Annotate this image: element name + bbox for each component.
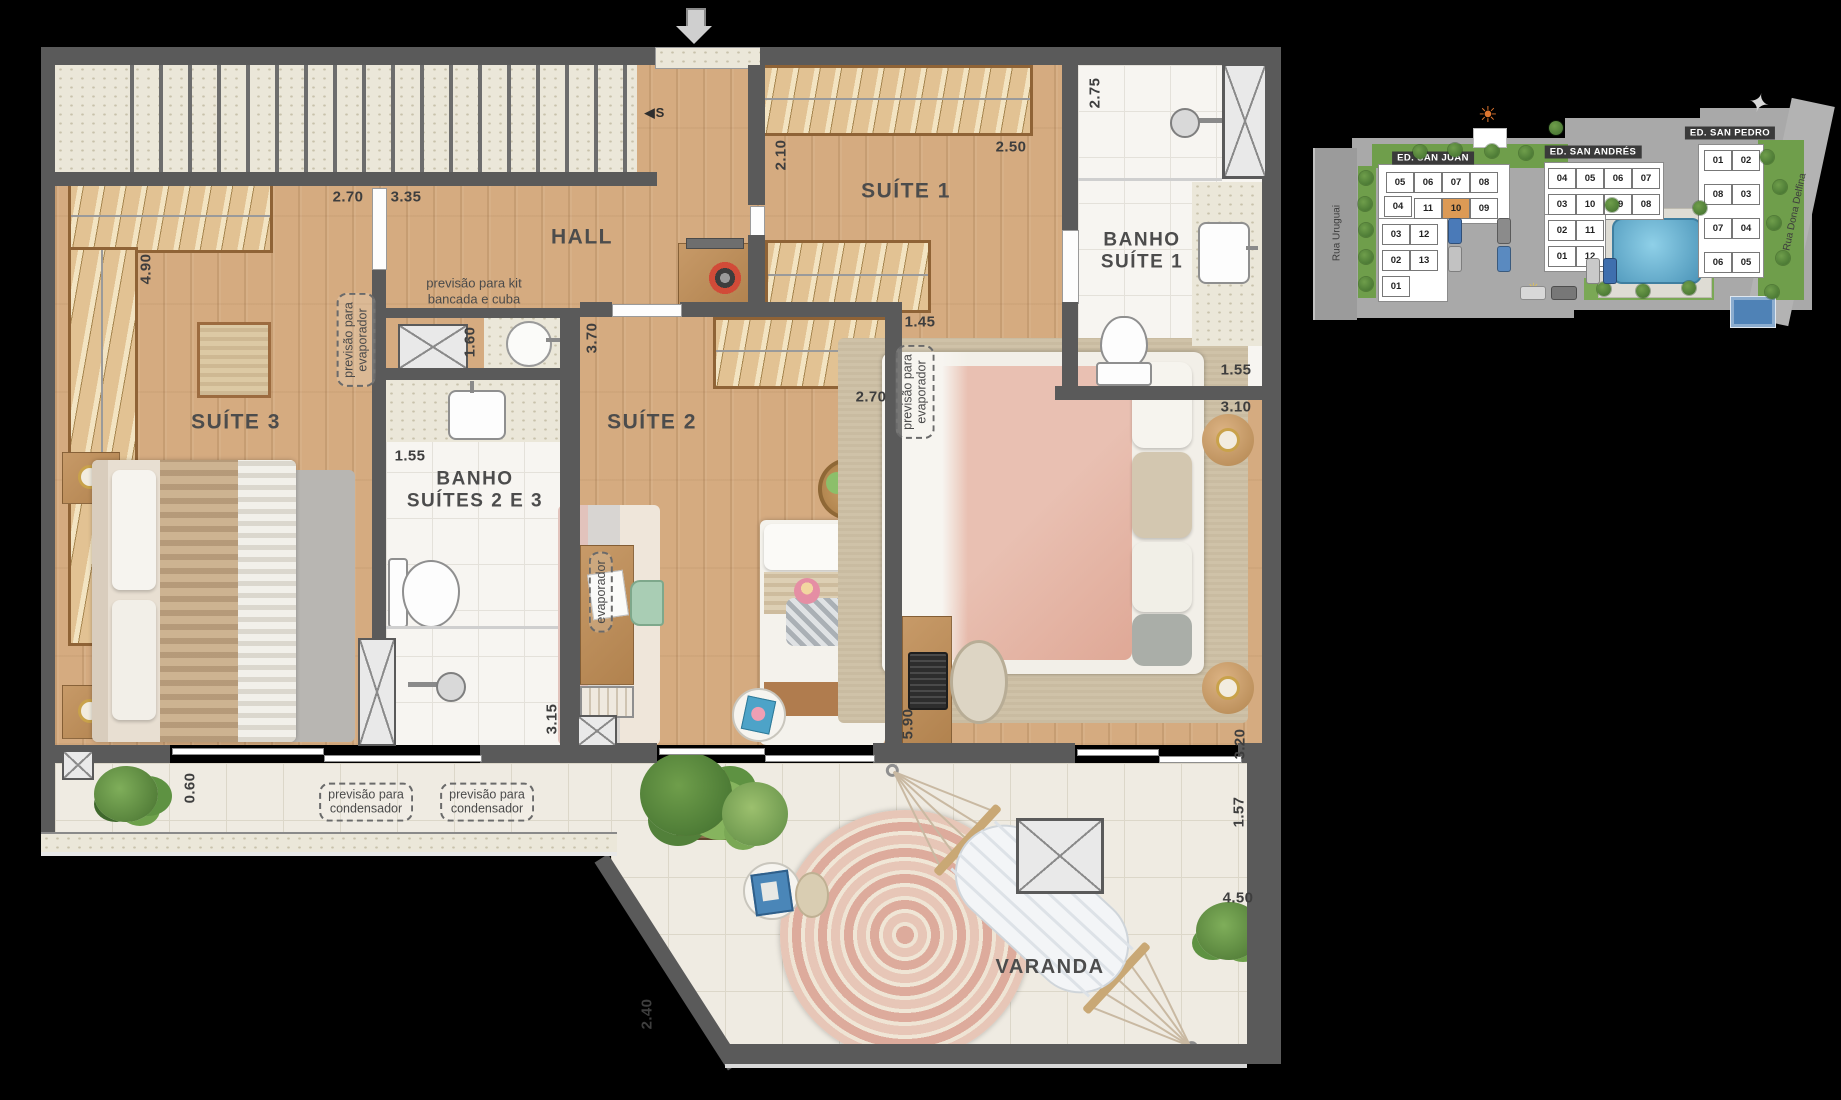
car-icon	[1603, 258, 1617, 284]
dimension-1.55: 1.55	[395, 448, 426, 465]
wall	[41, 172, 657, 186]
wall	[873, 743, 1075, 763]
sink-banho-1	[1198, 222, 1250, 284]
label-banho-suite-1: BANHOSUÍTE 1	[1101, 230, 1183, 275]
lamp-icon	[1216, 428, 1240, 452]
wall	[480, 745, 602, 763]
unit-san-juan-12: 12	[1410, 224, 1438, 245]
unit-san-juan-03: 03	[1382, 224, 1410, 245]
tree-icon	[1767, 216, 1781, 230]
label-banho-suites-2-3: BANHOSUÍTES 2 E 3	[407, 469, 543, 514]
shaft-icon	[358, 638, 396, 746]
unit-san-andres-01: 01	[1548, 246, 1576, 267]
dimension-2.75: 2.75	[1087, 78, 1104, 109]
unit-san-pedro-04: 04	[1732, 218, 1760, 239]
dresser-suite-2	[580, 686, 634, 718]
tree-icon	[1359, 171, 1373, 185]
dimension-2.40: 2.40	[639, 999, 656, 1030]
plant-icon	[94, 766, 158, 822]
note-evaporador-suite2: evaporador	[589, 551, 613, 632]
wall	[41, 47, 655, 65]
tree-icon	[1597, 282, 1611, 296]
car-icon	[1586, 258, 1600, 284]
lamp-icon	[1216, 676, 1240, 700]
chair-green-icon	[630, 580, 664, 626]
varanda-edge	[725, 1064, 1247, 1068]
tree-icon	[1359, 250, 1373, 264]
unit-san-pedro-08: 08	[1704, 184, 1732, 205]
plant-icon	[640, 752, 732, 836]
unit-san-juan-08: 08	[1470, 172, 1498, 193]
entry-arrow-icon	[686, 8, 706, 28]
tree-icon	[1358, 197, 1372, 211]
tree-icon	[1413, 145, 1427, 159]
toilet-banho-1-tank	[1096, 362, 1152, 386]
shaft-icon	[62, 750, 94, 780]
sliding-door	[659, 748, 765, 755]
unit-san-andres-02: 02	[1548, 220, 1576, 241]
tree-icon	[1448, 143, 1462, 157]
unit-san-juan-01: 01	[1382, 276, 1410, 297]
tree-icon	[1485, 144, 1499, 158]
dimension-2.70: 2.70	[333, 189, 364, 206]
dimension-2.10: 2.10	[773, 140, 790, 171]
pool	[1612, 218, 1702, 284]
shaft-icon	[1222, 63, 1268, 179]
tree-icon	[1765, 285, 1779, 299]
door-suite-2	[612, 304, 682, 317]
car-icon	[1551, 286, 1577, 300]
shower-partition-1	[1078, 178, 1222, 181]
unit-san-juan-10: 10	[1442, 198, 1470, 219]
unit-san-andres-07: 07	[1632, 168, 1660, 189]
wall	[725, 1044, 1247, 1064]
shaft-icon	[577, 715, 617, 747]
dimension-2.70: 2.70	[856, 389, 887, 406]
door-suite-1	[750, 206, 765, 236]
unit-san-pedro-05: 05	[1732, 252, 1760, 273]
building-label: ED. SAN JUAN	[1392, 152, 1474, 165]
unit-san-andres-05: 05	[1576, 168, 1604, 189]
dimension-1.60: 1.60	[462, 327, 479, 358]
dimension-3.20: 3.20	[1232, 729, 1249, 760]
tree-icon	[1636, 284, 1650, 298]
shower-head-1-icon	[1170, 108, 1200, 138]
unit-san-juan-07: 07	[1442, 172, 1470, 193]
plant-icon	[722, 782, 788, 846]
wall	[386, 308, 580, 318]
tree-icon	[1760, 150, 1774, 164]
shaft-icon	[398, 324, 468, 370]
unit-san-andres-08: 08	[1632, 194, 1660, 215]
varanda-parapet	[41, 832, 617, 854]
dimension-3.35: 3.35	[391, 189, 422, 206]
unit-san-andres-10: 10	[1576, 194, 1604, 215]
bed-suite-3	[92, 460, 296, 742]
car-icon	[1448, 246, 1462, 272]
note-kit-bancada: previsão para kitbancada e cuba	[426, 275, 521, 306]
wall	[748, 235, 765, 302]
wall	[748, 65, 765, 205]
tree-icon	[1682, 281, 1696, 295]
shower-partition-2-3	[386, 626, 560, 629]
label-varanda: VARANDA	[995, 956, 1104, 980]
dimension-3.15: 3.15	[544, 704, 561, 735]
car-icon	[1448, 218, 1462, 244]
note-condensador-2: previsão paracondensador	[440, 783, 534, 822]
dimension-2.50: 2.50	[996, 139, 1027, 156]
note-evaporador-suite3: previsão paraevaporador	[337, 293, 376, 387]
unit-san-pedro-07: 07	[1704, 218, 1732, 239]
floor-plan-page: SUÍTE 3HALLSUÍTE 2SUÍTE 1BANHOSUÍTES 2 E…	[0, 0, 1841, 1100]
door-suite-3	[372, 188, 387, 270]
dimension-3.10: 3.10	[1221, 399, 1252, 416]
label-suite-2: SUÍTE 2	[607, 411, 697, 436]
wall	[760, 47, 1281, 65]
unit-san-juan-02: 02	[1382, 250, 1410, 271]
stair-treads	[130, 65, 637, 172]
unit-san-andres-03: 03	[1548, 194, 1576, 215]
tree-icon	[1693, 201, 1707, 215]
wall	[560, 308, 580, 763]
shower-head-2-3-icon	[436, 672, 466, 702]
faucet-icon	[546, 338, 560, 342]
unit-san-andres-11: 11	[1576, 220, 1604, 241]
dimension-4.50: 4.50	[1223, 890, 1254, 907]
dimension-4.90: 4.90	[138, 254, 155, 285]
shaft-icon	[1016, 818, 1104, 894]
tree-icon	[1549, 121, 1563, 135]
wall	[680, 302, 885, 317]
unit-san-juan-13: 13	[1410, 250, 1438, 271]
unit-san-andres-06: 06	[1604, 168, 1632, 189]
toy-owl-icon	[794, 578, 820, 604]
shelf-hall	[686, 238, 744, 249]
varanda-edge	[41, 852, 617, 856]
unit-san-juan-11: 11	[1414, 198, 1442, 219]
label-hall: HALL	[551, 226, 613, 251]
entry-landing	[655, 47, 762, 69]
unit-san-andres-04: 04	[1548, 168, 1576, 189]
unit-san-pedro-02: 02	[1732, 150, 1760, 171]
closet-suite-3-top	[68, 182, 273, 253]
car-icon	[1497, 246, 1511, 272]
unit-san-juan-09: 09	[1470, 198, 1498, 219]
tree-icon	[1359, 223, 1373, 237]
dimension-1.55: 1.55	[1221, 362, 1252, 379]
dimension-5.90: 5.90	[900, 709, 917, 740]
wall	[580, 302, 612, 317]
tree-icon	[1359, 277, 1373, 291]
sink-round-icon	[506, 321, 552, 367]
tree-icon	[1776, 251, 1790, 265]
sliding-door	[172, 748, 324, 755]
door-banho-suite-1	[1062, 230, 1079, 304]
unit-san-juan-04: 04	[1384, 196, 1412, 217]
photo-frame-icon	[750, 870, 793, 917]
dimension-1.57: 1.57	[1231, 797, 1248, 828]
car-icon	[1497, 218, 1511, 244]
street-label: Rua Uruguai	[1332, 205, 1343, 261]
pouf-suite-3	[197, 322, 271, 398]
sport-court	[1730, 296, 1776, 328]
wall	[1062, 65, 1078, 230]
label-suite-1: SUÍTE 1	[861, 180, 951, 205]
sliding-door	[1077, 749, 1159, 756]
faucet-icon	[470, 381, 474, 393]
unit-san-pedro-01: 01	[1704, 150, 1732, 171]
building-label: ED. SAN PEDRO	[1685, 127, 1775, 140]
unit-san-juan-06: 06	[1414, 172, 1442, 193]
dimension-3.70: 3.70	[584, 323, 601, 354]
note-evaporador-suite1: previsão paraevaporador	[896, 345, 935, 439]
unit-san-pedro-06: 06	[1704, 252, 1732, 273]
car-icon	[1520, 286, 1546, 300]
wall	[1062, 302, 1078, 386]
tree-icon	[1519, 146, 1533, 160]
stair-direction-marker: ◀S	[645, 105, 666, 121]
unit-san-juan-05: 05	[1386, 172, 1414, 193]
wall	[41, 47, 55, 853]
sun-icon: ☀	[1478, 104, 1498, 126]
sink-banho-2-3	[448, 390, 506, 440]
closet-suite-1-top	[762, 65, 1033, 136]
building-label: ED. SAN ANDRÉS	[1545, 146, 1642, 159]
dimension-0.60: 0.60	[182, 773, 199, 804]
dimension-1.45: 1.45	[905, 314, 936, 331]
tree-icon	[1773, 180, 1787, 194]
chair-red-icon	[707, 260, 743, 296]
sliding-door	[1159, 756, 1242, 763]
sliding-door	[765, 755, 875, 762]
faucet-icon	[1246, 246, 1258, 250]
note-condensador-1: previsão paracondensador	[319, 783, 413, 822]
entry-arrow-icon	[676, 26, 712, 44]
label-suite-3: SUÍTE 3	[191, 411, 281, 436]
wall	[41, 745, 170, 763]
unit-san-pedro-03: 03	[1732, 184, 1760, 205]
tree-icon	[1605, 198, 1619, 212]
sliding-door	[324, 755, 482, 762]
